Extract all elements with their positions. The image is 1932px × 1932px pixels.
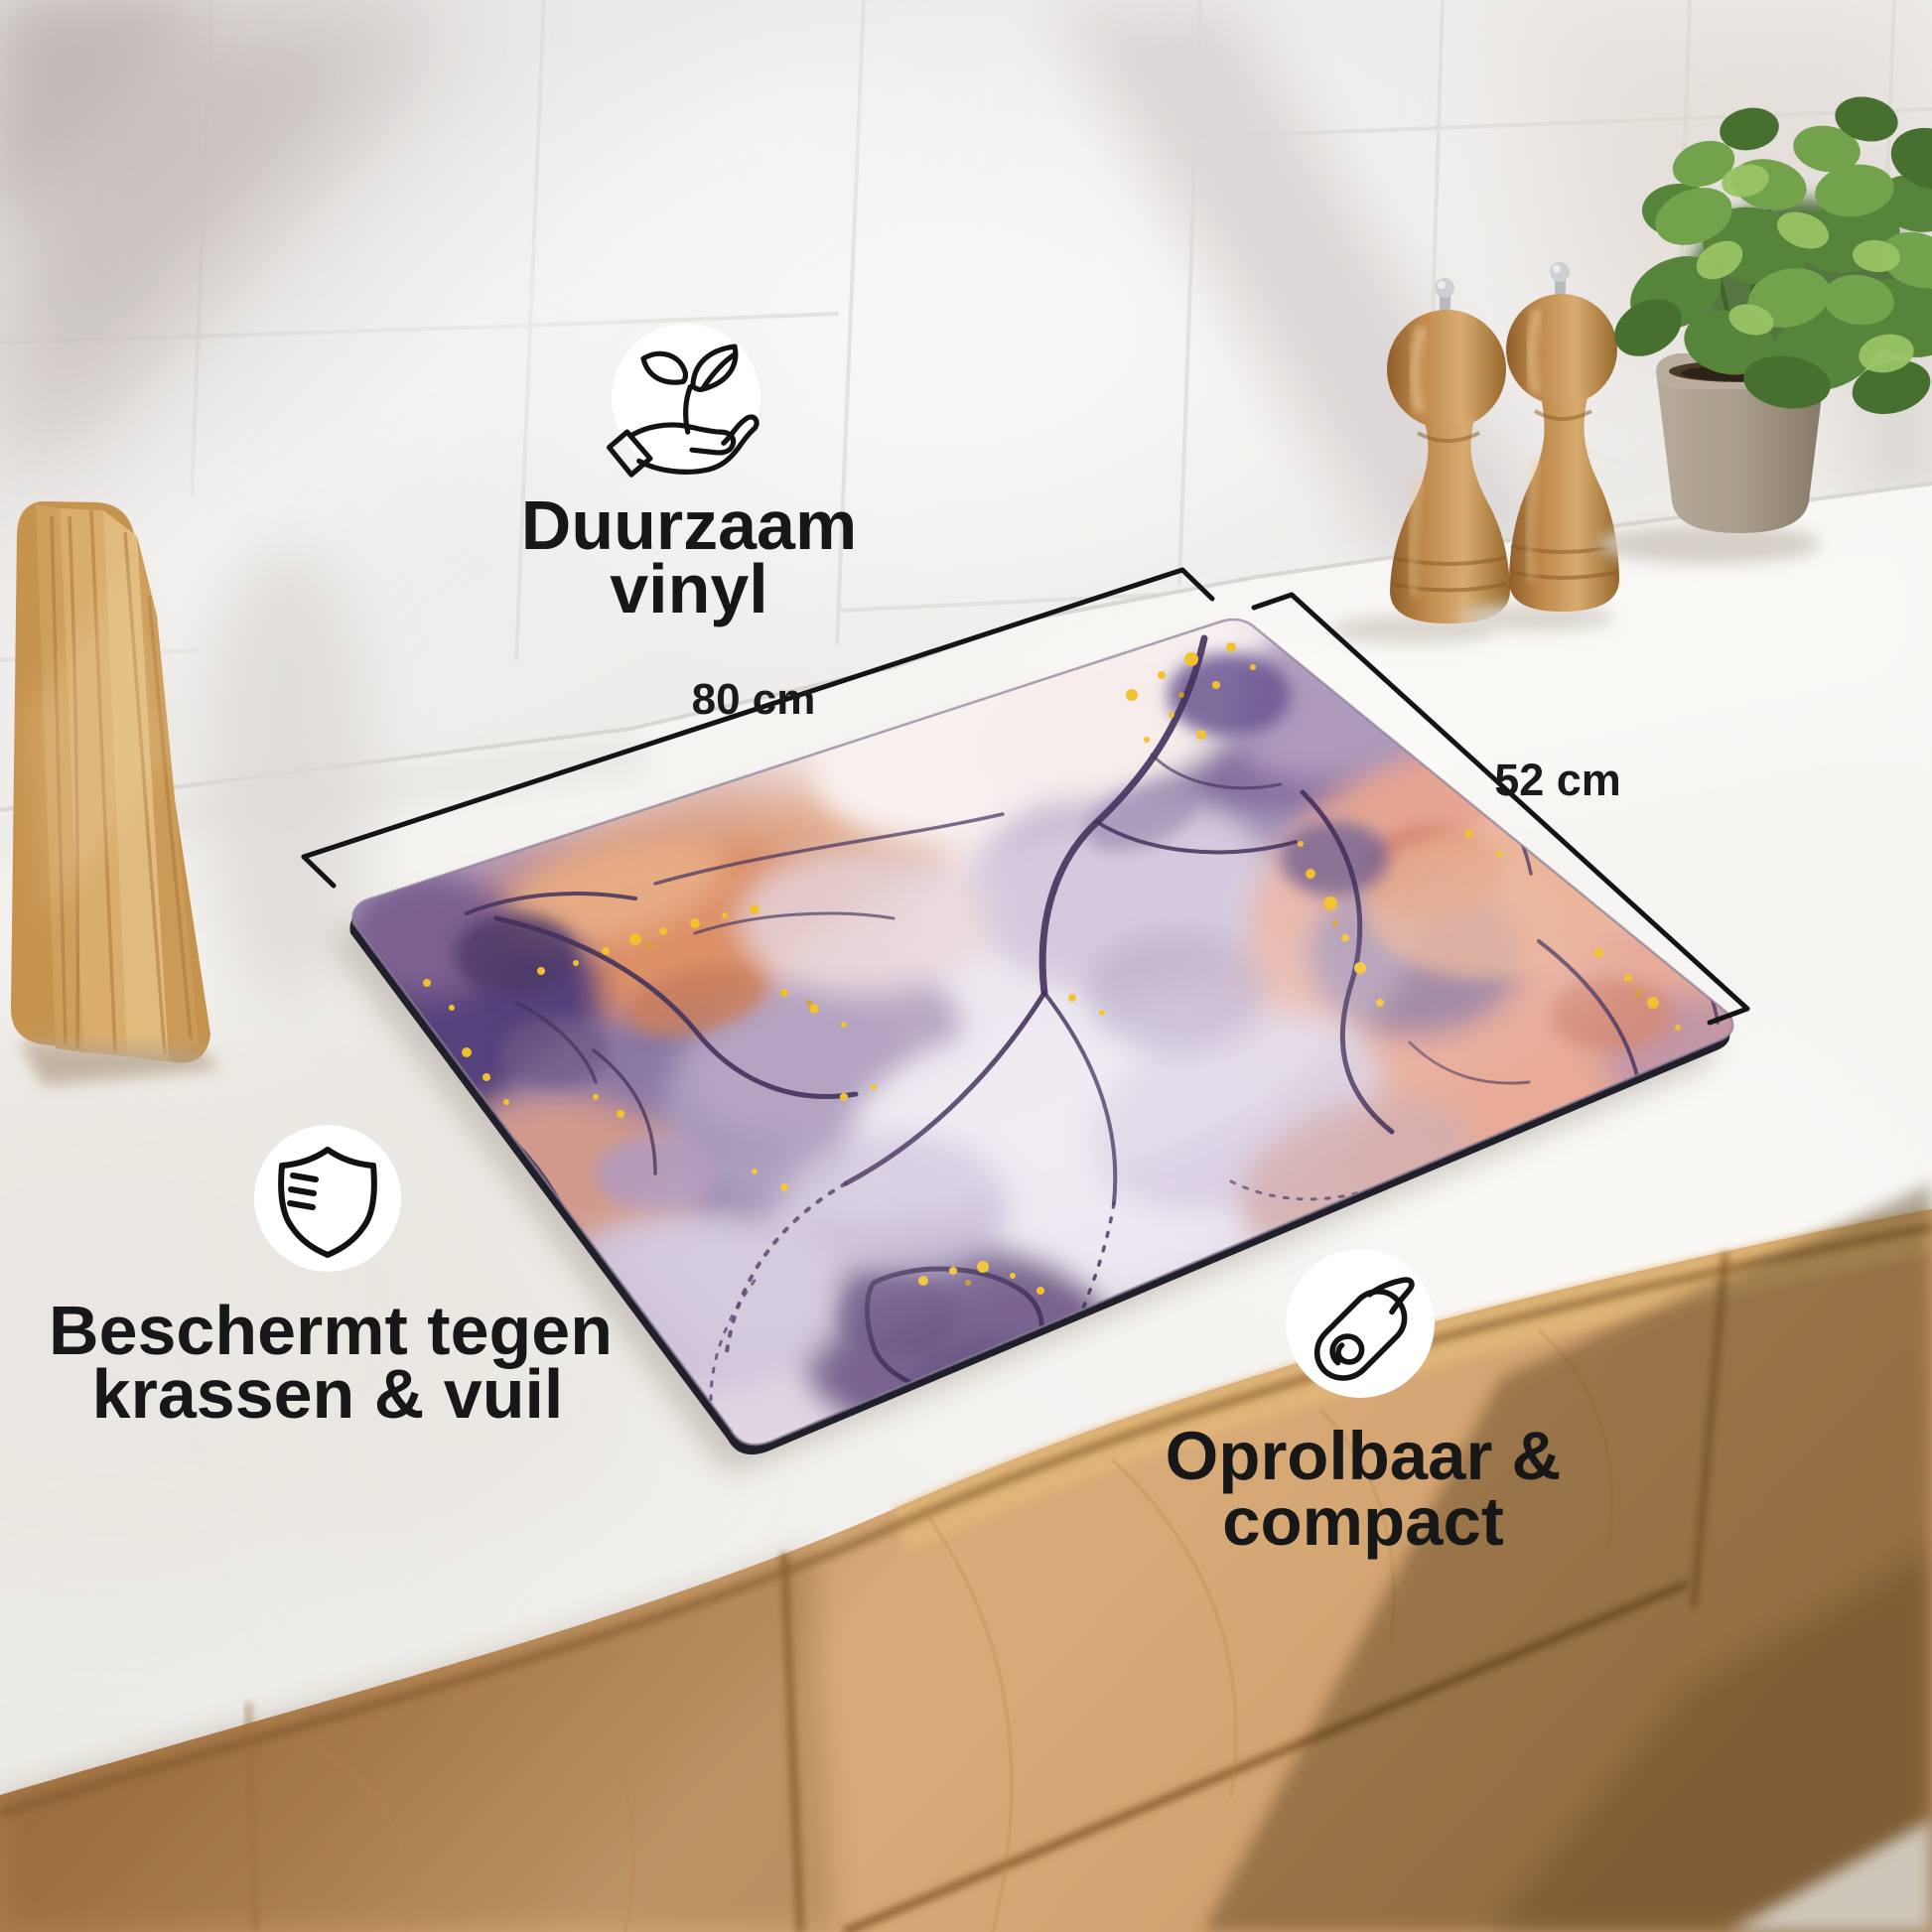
- svg-text:80 cm: 80 cm: [692, 675, 816, 724]
- svg-text:52 cm: 52 cm: [1494, 755, 1621, 805]
- svg-text:krassen & vuil: krassen & vuil: [92, 1355, 564, 1433]
- svg-text:vinyl: vinyl: [610, 550, 768, 627]
- svg-text:compact: compact: [1222, 1483, 1504, 1560]
